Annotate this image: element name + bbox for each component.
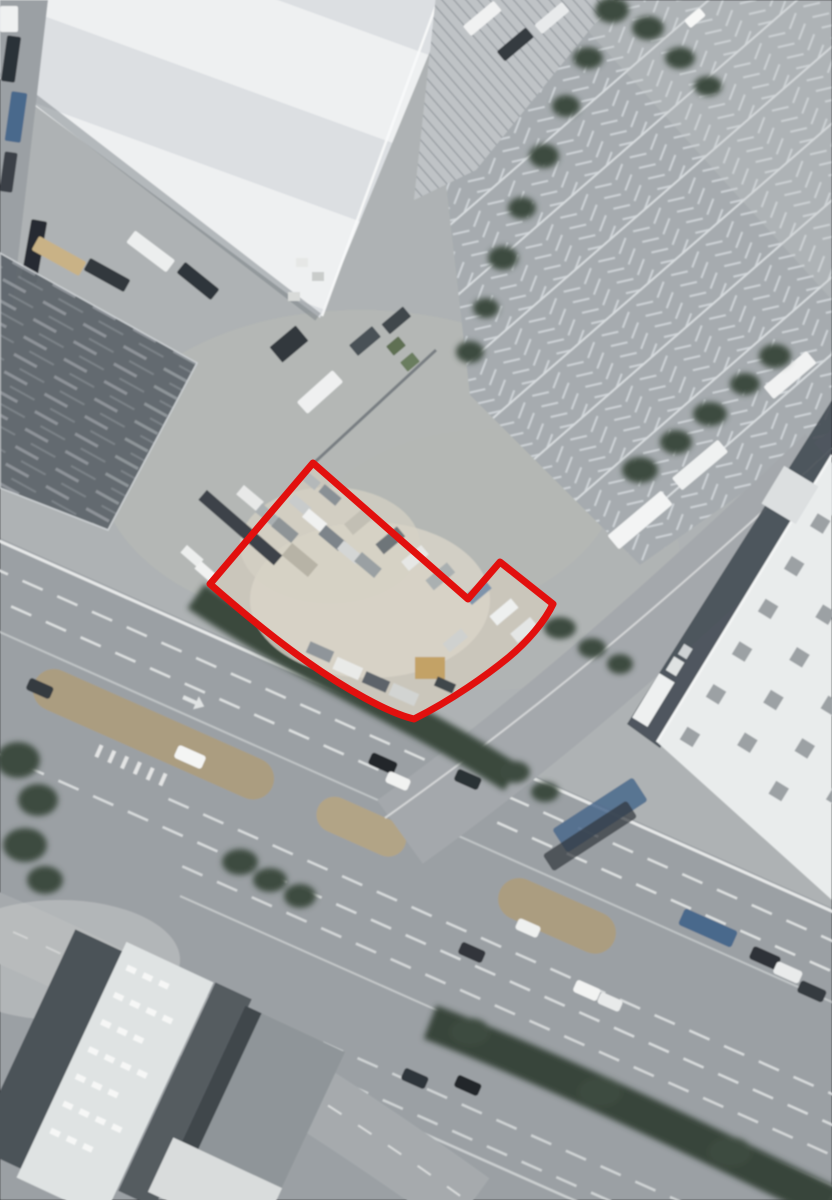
truck (0, 6, 18, 32)
aerial-photo-canvas (0, 0, 832, 1200)
satellite-image (0, 0, 832, 1200)
digger (415, 657, 445, 679)
photo-layer (0, 0, 832, 1200)
